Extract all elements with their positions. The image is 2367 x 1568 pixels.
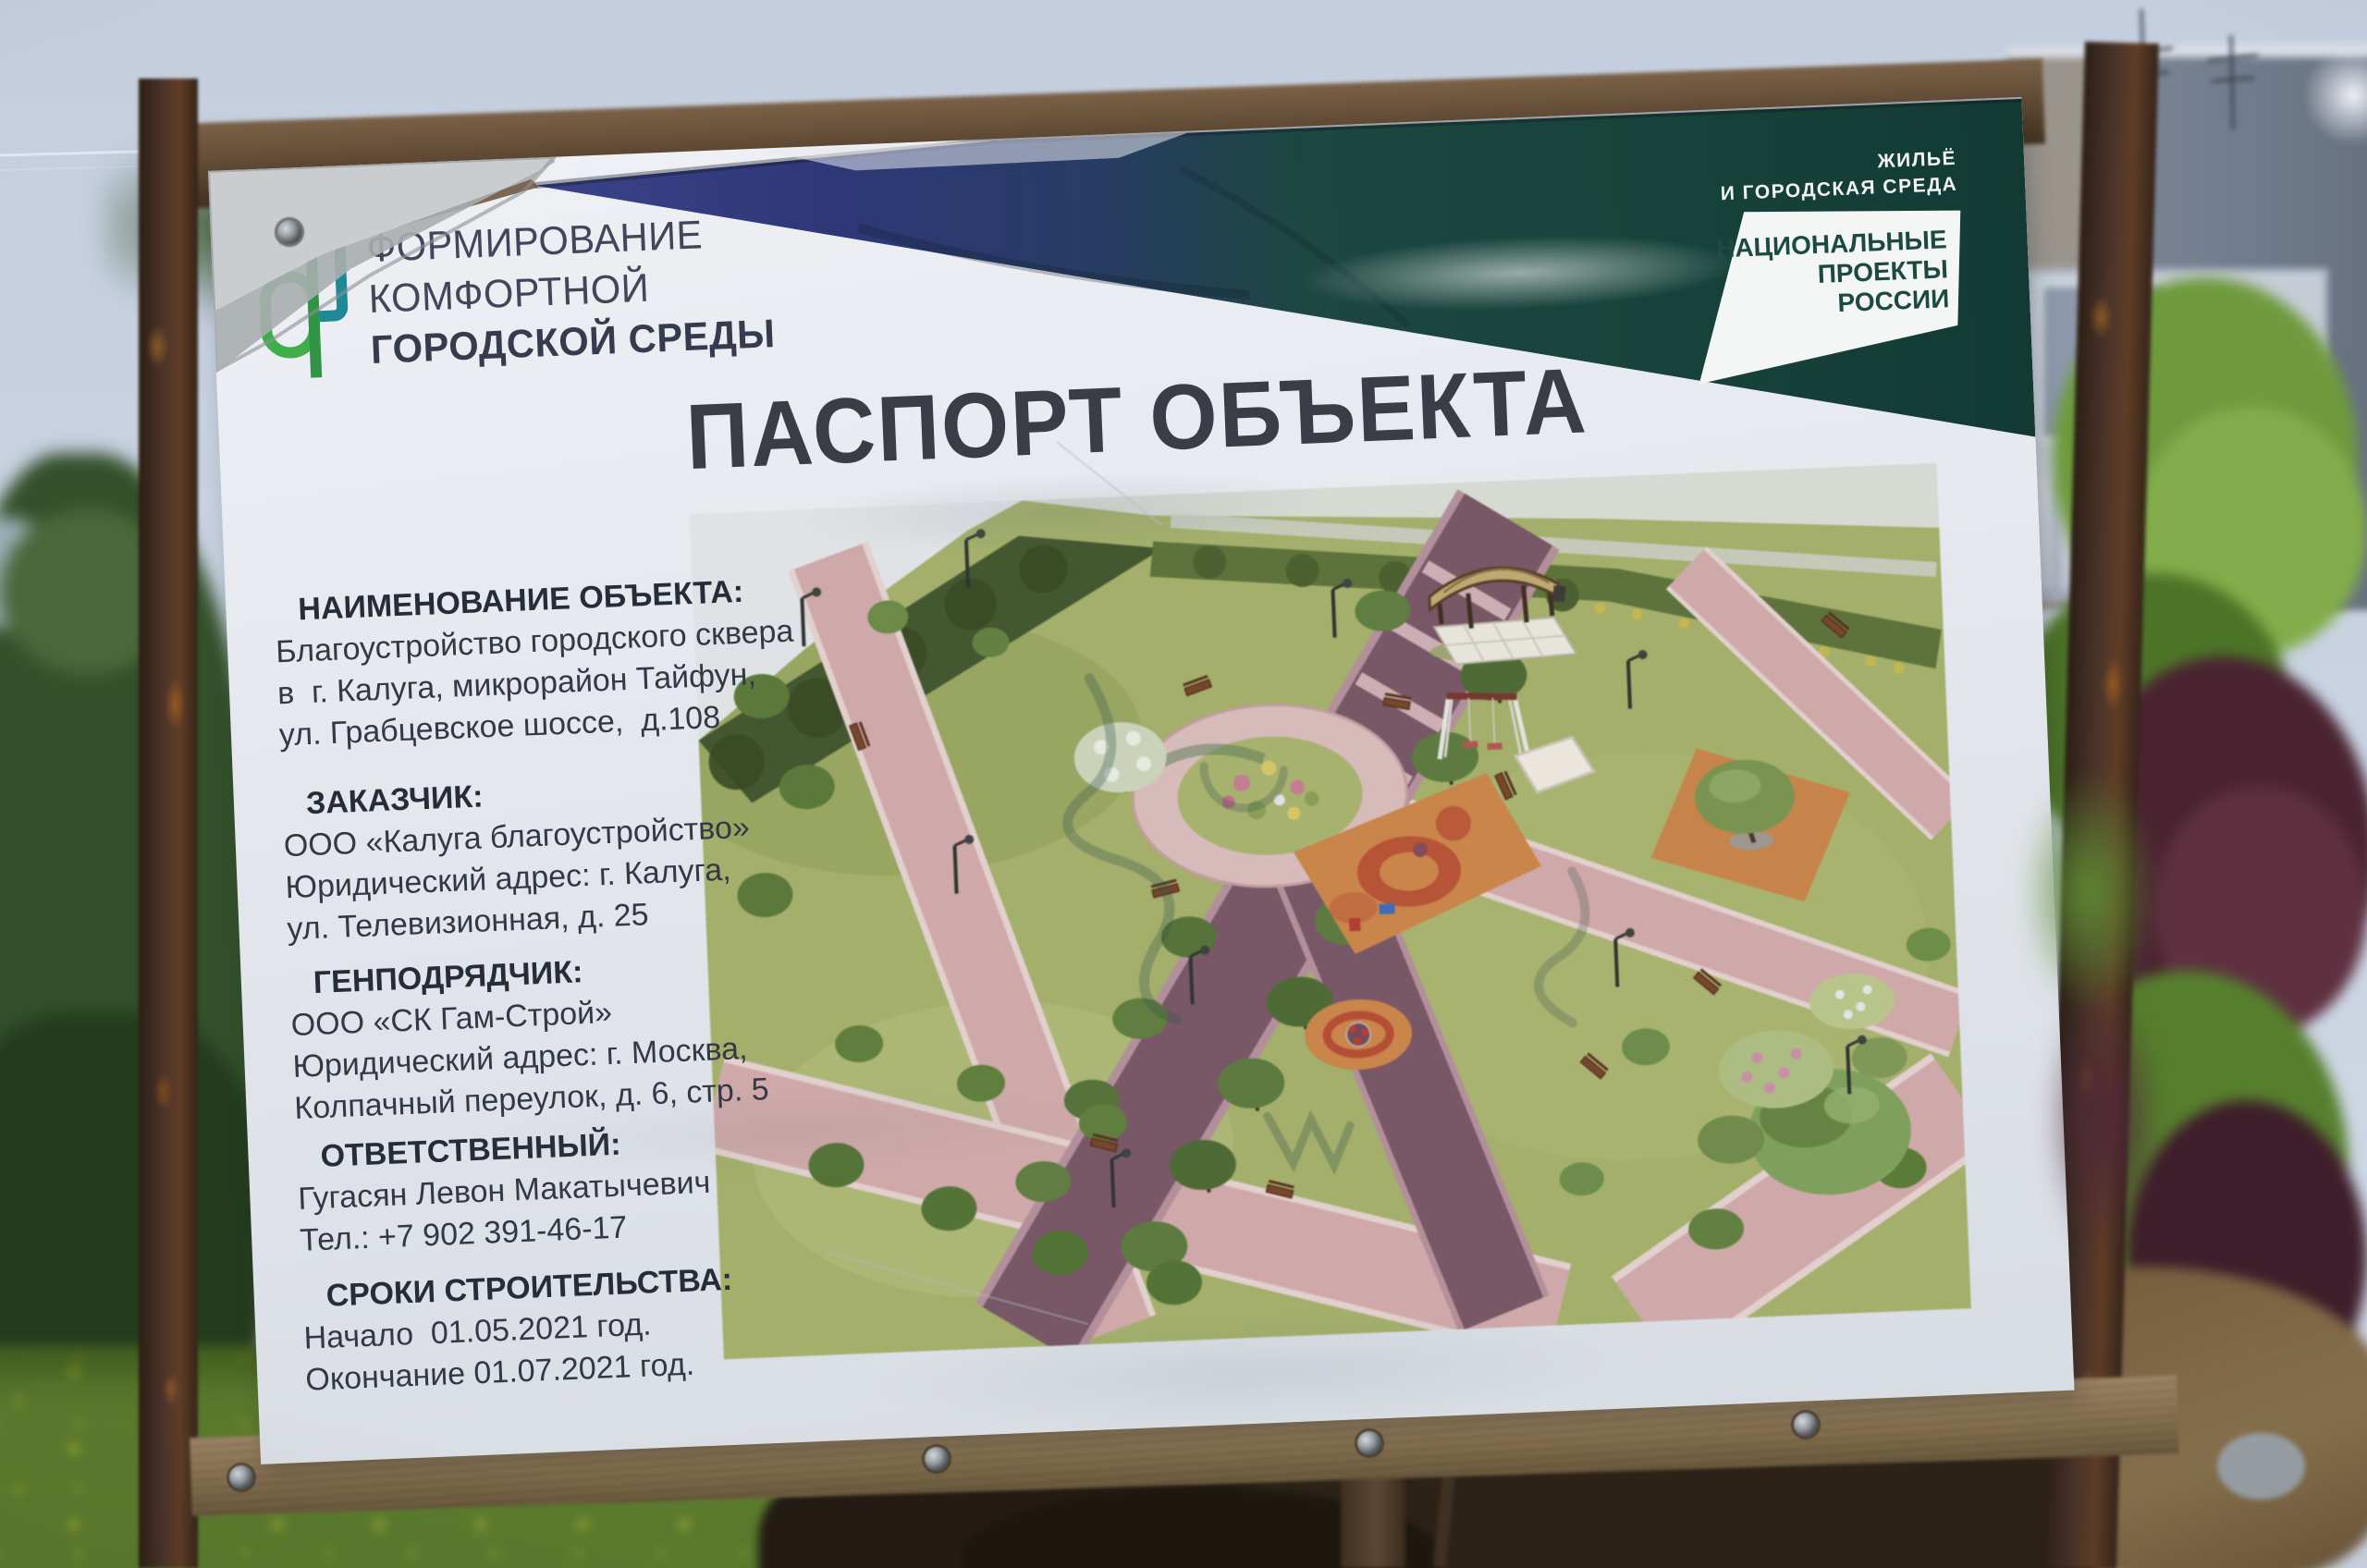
banner-curl <box>208 97 2075 1464</box>
photo-scene: ЖИЛЬЁ И ГОРОДСКАЯ СРЕДА НАЦИОНАЛЬНЫЕ ПРО… <box>0 0 2367 1568</box>
screw <box>1357 1431 1381 1455</box>
screw <box>1794 1413 1818 1437</box>
sign-post-left <box>139 79 198 1568</box>
stone <box>2217 1433 2305 1500</box>
screw <box>925 1447 949 1471</box>
screw <box>229 1465 253 1489</box>
foreground-purple-leaves <box>2043 980 2164 1257</box>
screw <box>277 220 301 244</box>
project-passport-banner: ЖИЛЬЁ И ГОРОДСКАЯ СРЕДА НАЦИОНАЛЬНЫЕ ПРО… <box>208 97 2075 1464</box>
